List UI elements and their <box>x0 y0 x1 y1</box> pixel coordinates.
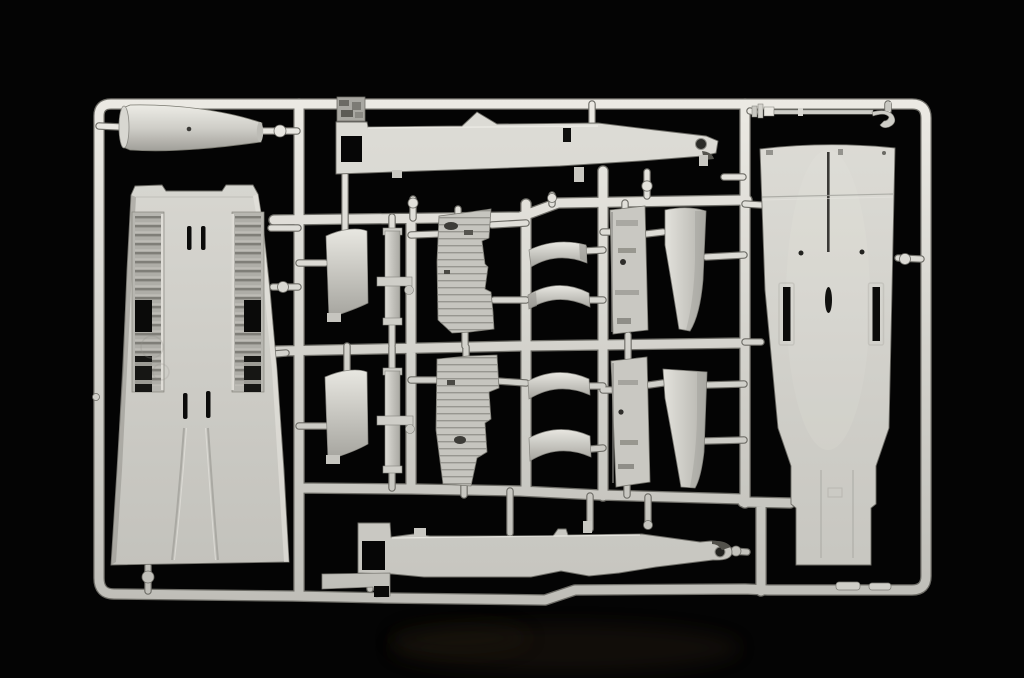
rfuse-nick-3 <box>882 151 886 155</box>
avionics-upper-streak-3 <box>615 290 639 295</box>
avionics-panel-lower <box>611 357 650 487</box>
rfuse-hole-right <box>860 250 865 255</box>
avionics-lower-edge <box>612 363 614 483</box>
rfuse-side-slot-left <box>783 287 791 341</box>
door-upper-tab <box>327 313 341 322</box>
strut-upper-hook <box>405 286 414 295</box>
rfuse-center-slot <box>827 152 830 252</box>
avionics-panel-upper <box>610 206 648 334</box>
avionics-lower-streak-1 <box>618 380 638 385</box>
rfuse-nick-2 <box>838 149 843 155</box>
probe-collar <box>798 108 803 116</box>
avionics-upper-hole <box>620 259 626 265</box>
strut-upper-cap-bottom <box>383 318 402 325</box>
probe-fitting-1 <box>752 106 757 117</box>
detail-block-mark-4 <box>355 112 363 118</box>
tank-pin-hole <box>187 127 192 132</box>
avionics-upper-streak-4 <box>617 318 631 324</box>
sprue-photo <box>0 0 1024 678</box>
photo-smudge-2 <box>390 622 530 654</box>
baywall-upper-detail-1 <box>444 222 458 230</box>
photo-root <box>0 0 1024 678</box>
bay-wall-panel-upper <box>437 209 494 333</box>
gear-bay-right <box>232 212 265 392</box>
wing-fuselage-panel <box>111 185 289 565</box>
probe-fitting-3 <box>764 107 774 116</box>
baywall-lower-detail-2 <box>454 436 466 444</box>
gear-bay-left <box>132 212 164 392</box>
probe-stub <box>886 102 891 111</box>
door-upper-face <box>326 229 368 318</box>
tank-cap <box>119 106 129 148</box>
rfuse-groove-right <box>852 470 854 558</box>
baywall-upper-detail-2 <box>464 230 473 235</box>
door-lower-face <box>325 370 368 460</box>
rfuse-teardrop-hole <box>825 287 832 313</box>
plate-notch <box>374 586 389 597</box>
rfuse-nick-1 <box>766 150 773 155</box>
spine-upper-hole <box>696 139 707 150</box>
tank-end <box>257 122 263 142</box>
avionics-upper-edge <box>611 212 613 332</box>
detail-block-mark-1 <box>339 100 349 106</box>
avionics-lower-streak-3 <box>618 464 634 469</box>
avionics-upper-streak-2 <box>618 248 636 253</box>
lip2-facet <box>528 292 537 309</box>
rfuse-side-slot-right <box>873 287 881 341</box>
detail-block-mark-2 <box>352 102 361 110</box>
detail-block <box>337 97 365 121</box>
avionics-upper-streak-1 <box>616 220 638 226</box>
detail-block-mark-3 <box>341 110 353 117</box>
spine-upper-intake-hole <box>341 136 362 162</box>
spine-upper-slot <box>563 128 571 142</box>
spine-lower-intake-hole <box>362 541 385 570</box>
avionics-lower-hole <box>618 409 623 414</box>
strut-lower-cap-bottom <box>383 466 402 473</box>
strut-upper-crossbar <box>377 277 412 286</box>
probe-rod <box>774 110 873 114</box>
baywall-upper-detail-3 <box>444 270 450 274</box>
door-lower-tab <box>326 455 340 464</box>
avionics-lower-streak-2 <box>620 440 638 445</box>
probe-fitting-2 <box>758 104 763 118</box>
rfuse-hole-left <box>799 251 804 256</box>
strut-lower-hook <box>406 425 415 434</box>
strut-lower-crossbar <box>377 416 413 425</box>
baywall-lower-detail-1 <box>447 380 455 385</box>
rfuse-groove-left <box>820 470 822 558</box>
